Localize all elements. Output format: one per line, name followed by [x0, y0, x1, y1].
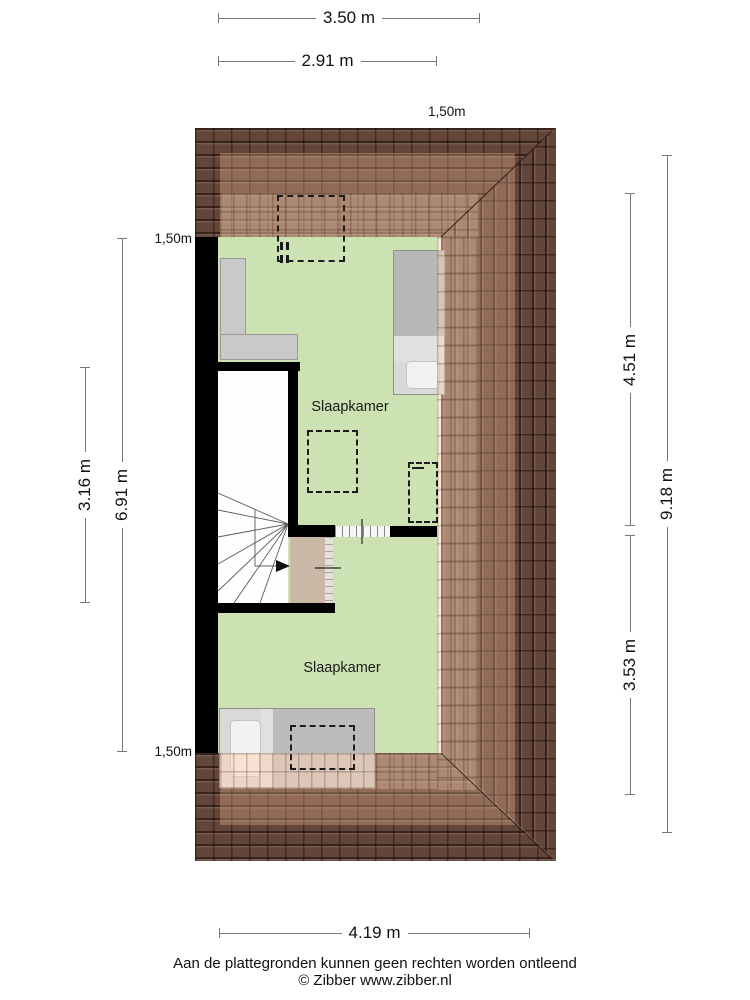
door-threshold [290, 537, 325, 603]
wall-mid-right [390, 526, 437, 537]
dimension-label: 3.53 m [620, 639, 640, 691]
height-marker-left-upper: 1,50m [148, 231, 192, 246]
wall-mid-left [288, 525, 335, 537]
dimension-label: 4.51 m [620, 334, 640, 386]
roof-band-medium-top [220, 153, 515, 193]
height-marker-left-lower: 1,50m [148, 744, 192, 759]
roof-window-mark [286, 242, 289, 250]
room-label-upper: Slaapkamer [300, 399, 400, 415]
wall-left [195, 237, 218, 753]
stairwell [218, 371, 288, 603]
bed-pillow [406, 361, 440, 389]
dimension-left-inner: 3.16 m [76, 367, 94, 603]
height-marker-top: 1,50m [428, 104, 466, 119]
footer-copyright: © Zibber www.zibber.nl [0, 972, 750, 989]
roof-window-outline-middle [307, 430, 358, 493]
roof-band-light-right [437, 237, 478, 790]
dimension-left-outer: 6.91 m [113, 238, 131, 752]
roof-window-outline-right [408, 462, 438, 523]
wardrobe-horizontal [220, 334, 298, 360]
dimension-top-outer: 3.50 m [218, 6, 480, 30]
footer-disclaimer: Aan de plattegronden kunnen geen rechten… [0, 955, 750, 972]
dimension-label: 3.50 m [323, 8, 375, 28]
wardrobe-vertical [220, 258, 246, 337]
door-leaf [325, 537, 333, 603]
roof-band-medium-right [478, 193, 515, 825]
dimension-top-inner: 2.91 m [218, 49, 437, 73]
roof-window-mark [280, 242, 283, 250]
dimension-label: 2.91 m [302, 51, 354, 71]
roof-band-medium-bottom [220, 790, 478, 825]
roof-window-outline-top [277, 195, 345, 262]
roof-window-mark [412, 467, 424, 469]
roof-band-light-top [220, 193, 478, 237]
dimension-right-lower: 3.53 m [621, 535, 639, 795]
dimension-label: 4.19 m [349, 923, 401, 943]
wall-opening [335, 526, 390, 537]
roof-window-mark [286, 255, 289, 263]
wall-stair-bottom [214, 603, 335, 613]
wall-stair-right [288, 362, 298, 527]
dimension-label: 3.16 m [75, 459, 95, 511]
dimension-right-outer: 9.18 m [658, 155, 676, 833]
dimension-right-upper: 4.51 m [621, 193, 639, 526]
floorplan-canvas: Slaapkamer Slaapkamer 3.50 m 2.91 m 4.19… [0, 0, 750, 1000]
room-label-lower: Slaapkamer [292, 660, 392, 676]
roof-window-mark [280, 255, 283, 263]
roof-window-outline-bottom [290, 725, 355, 770]
dimension-label: 9.18 m [657, 468, 677, 520]
dimension-bottom: 4.19 m [219, 921, 530, 945]
dimension-label: 6.91 m [112, 469, 132, 521]
